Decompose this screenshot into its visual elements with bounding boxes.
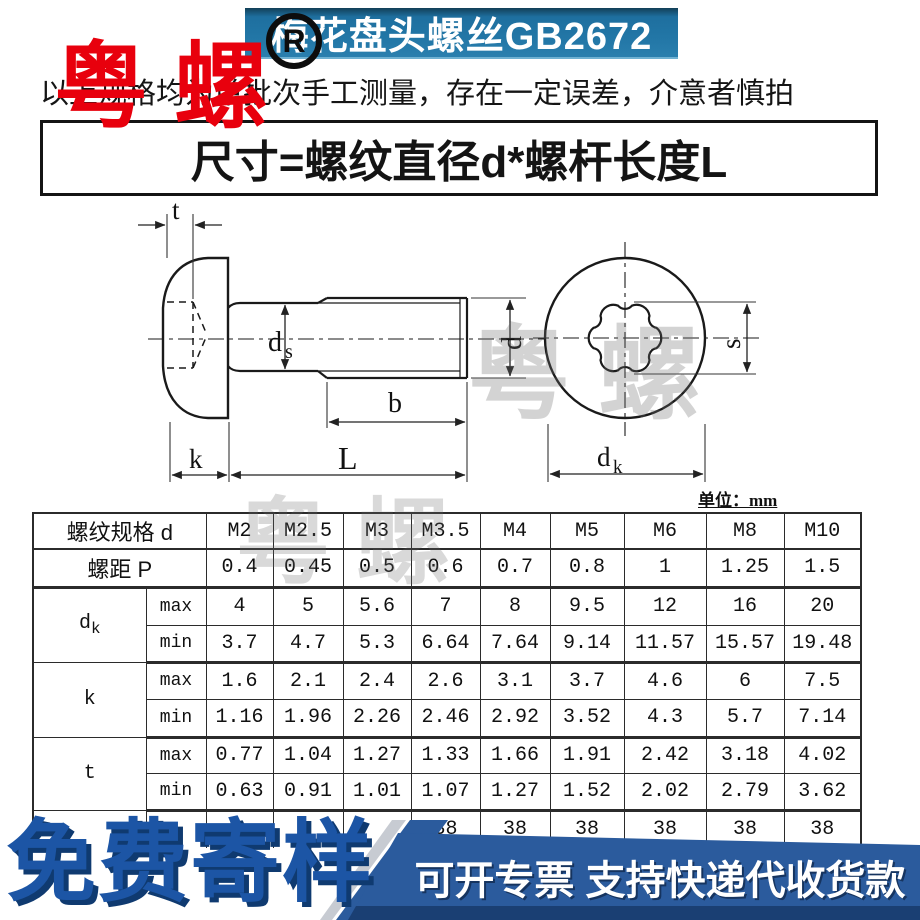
row-label-dk-main: d <box>79 612 91 635</box>
label-L: L <box>338 440 358 476</box>
table-cell: 1.27 <box>343 737 411 773</box>
watermark-gray-drawing: 粤 螺 <box>468 324 700 426</box>
promo-text: 可开专票 支持快递代收货款 <box>414 859 905 903</box>
table-cell: 1.6 <box>206 662 273 699</box>
table-cell: 2.1 <box>273 662 343 699</box>
table-cell: 2.46 <box>411 699 480 737</box>
table-cell: 0.77 <box>206 737 273 773</box>
label-s: s <box>716 338 746 349</box>
spec-header-label: 螺纹规格 d <box>33 513 206 549</box>
size-header: M10 <box>784 513 861 549</box>
table-cell: 15.57 <box>706 625 784 662</box>
table-cell: 16 <box>706 587 784 625</box>
table-cell: 1.33 <box>411 737 480 773</box>
table-row: min 3.7 4.7 5.3 6.64 7.64 9.14 11.57 15.… <box>33 625 861 662</box>
table-cell: 1.96 <box>273 699 343 737</box>
table-cell: 3.52 <box>550 699 624 737</box>
table-cell: 7.5 <box>784 662 861 699</box>
table-cell: 6 <box>706 662 784 699</box>
table-cell: 19.48 <box>784 625 861 662</box>
row-label-dk-sub: k <box>91 620 101 638</box>
table-cell: 0.8 <box>550 549 624 587</box>
size-header: M4 <box>480 513 550 549</box>
table-cell: 11.57 <box>624 625 706 662</box>
banner-band-dark-strip <box>348 906 920 920</box>
promo-banner: 可开专票 支持快递代收货款 可开专票 支持快递代收货款 <box>320 805 920 920</box>
technical-drawing: t d s b k L d s d k <box>0 196 920 512</box>
table-cell: 8 <box>480 587 550 625</box>
table-cell: 7.14 <box>784 699 861 737</box>
unit-note: 单位：mm <box>698 486 777 511</box>
table-cell: 2.92 <box>480 699 550 737</box>
unit-label: 单位： <box>698 491 749 510</box>
table-cell: 9.5 <box>550 587 624 625</box>
table-cell: 20 <box>784 587 861 625</box>
size-header: M5 <box>550 513 624 549</box>
min-label: min <box>146 773 206 810</box>
table-cell: 5.7 <box>706 699 784 737</box>
table-cell: 9.14 <box>550 625 624 662</box>
table-cell: 1.04 <box>273 737 343 773</box>
table-row: k max 1.6 2.1 2.4 2.6 3.1 3.7 4.6 6 7.5 <box>33 662 861 699</box>
pitch-label: 螺距 P <box>33 549 206 587</box>
table-cell: 3.18 <box>706 737 784 773</box>
thread-outline <box>318 298 467 378</box>
screw-head-outline <box>163 258 228 418</box>
table-row: min 1.16 1.96 2.26 2.46 2.92 3.52 4.3 5.… <box>33 699 861 737</box>
label-b: b <box>388 388 402 419</box>
table-cell: 3.7 <box>206 625 273 662</box>
label-dk-sub: k <box>613 457 623 478</box>
table-cell: 7.64 <box>480 625 550 662</box>
table-cell: 3.7 <box>550 662 624 699</box>
table-cell: 1.66 <box>480 737 550 773</box>
size-formula-text: 尺寸=螺纹直径d*螺杆长度L <box>191 126 728 190</box>
registered-trademark-icon: R <box>266 13 322 69</box>
max-label: max <box>146 662 206 699</box>
table-cell: 2.26 <box>343 699 411 737</box>
table-cell: 3.1 <box>480 662 550 699</box>
row-label-k: k <box>33 662 146 737</box>
table-cell: 4.7 <box>273 625 343 662</box>
size-header: M8 <box>706 513 784 549</box>
table-cell: 2.42 <box>624 737 706 773</box>
recess-hidden-lines <box>167 302 207 368</box>
min-label: min <box>146 699 206 737</box>
free-sample-text: 免费寄样 <box>6 818 374 908</box>
dimension-lines <box>138 225 510 475</box>
label-t: t <box>172 196 180 225</box>
thread-minor-lines <box>318 298 460 378</box>
label-dk-main: d <box>597 442 611 472</box>
table-cell: 1.25 <box>706 549 784 587</box>
row-label-t: t <box>33 737 146 810</box>
table-cell: 12 <box>624 587 706 625</box>
table-cell: 1.16 <box>206 699 273 737</box>
unit-value: mm <box>749 491 777 510</box>
table-row: t max 0.77 1.04 1.27 1.33 1.66 1.91 2.42… <box>33 737 861 773</box>
table-cell: 0.7 <box>480 549 550 587</box>
table-cell: 2.4 <box>343 662 411 699</box>
label-ds-main: d <box>268 327 282 358</box>
table-cell: 4.6 <box>624 662 706 699</box>
table-cell: 6.64 <box>411 625 480 662</box>
label-ds-sub: s <box>285 341 293 363</box>
page-title: 梅花盘头螺丝GB2672 <box>271 5 653 60</box>
row-label-dk: dk <box>33 587 146 662</box>
watermark-red: 粤 螺 <box>54 38 268 137</box>
table-cell: 2.6 <box>411 662 480 699</box>
table-cell: 4.3 <box>624 699 706 737</box>
size-header: M6 <box>624 513 706 549</box>
table-cell: 5.3 <box>343 625 411 662</box>
table-cell: 0.63 <box>206 773 273 810</box>
max-label: max <box>146 737 206 773</box>
max-label: max <box>146 587 206 625</box>
table-cell: 1 <box>624 549 706 587</box>
min-label: min <box>146 625 206 662</box>
watermark-gray-table: 粤 螺 <box>236 496 450 590</box>
table-cell: 1.5 <box>784 549 861 587</box>
label-k: k <box>189 444 203 474</box>
table-cell: 1.91 <box>550 737 624 773</box>
product-spec-sheet: 梅花盘头螺丝GB2672 R 粤 螺 以上规格均为单批次手工测量，存在一定误差，… <box>0 0 920 920</box>
table-cell: 4.02 <box>784 737 861 773</box>
